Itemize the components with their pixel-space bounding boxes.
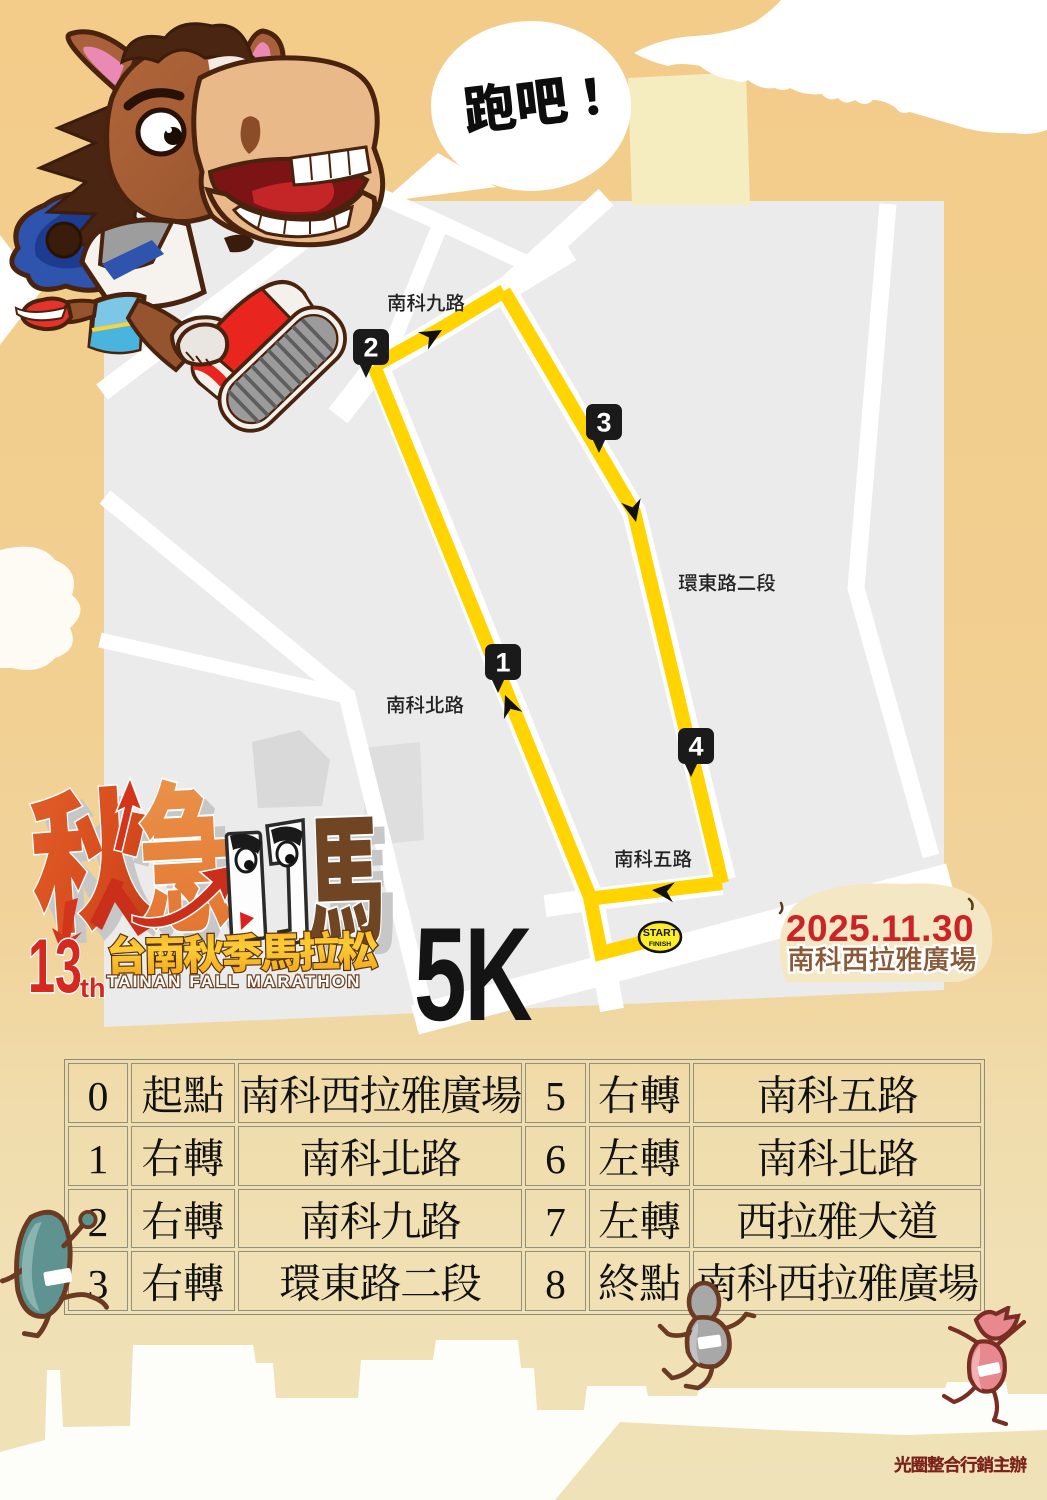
svg-text:4: 4	[688, 732, 703, 762]
svg-text:南科北路: 南科北路	[386, 689, 465, 718]
svg-text:START: START	[643, 927, 678, 939]
svg-text:南科五路: 南科五路	[614, 843, 693, 872]
svg-text:3: 3	[596, 408, 611, 438]
svg-text:TAINAN FALL MARATHON: TAINAN FALL MARATHON	[107, 972, 361, 991]
svg-text:FINISH: FINISH	[649, 941, 671, 948]
svg-text:南科西拉雅廣場: 南科西拉雅廣場	[788, 938, 977, 977]
svg-text:13: 13	[28, 923, 82, 1009]
svg-text:1: 1	[495, 648, 510, 678]
svg-text:5K: 5K	[414, 901, 532, 1030]
svg-text:環東路二段: 環東路二段	[678, 567, 776, 596]
svg-text:th: th	[80, 973, 105, 1003]
